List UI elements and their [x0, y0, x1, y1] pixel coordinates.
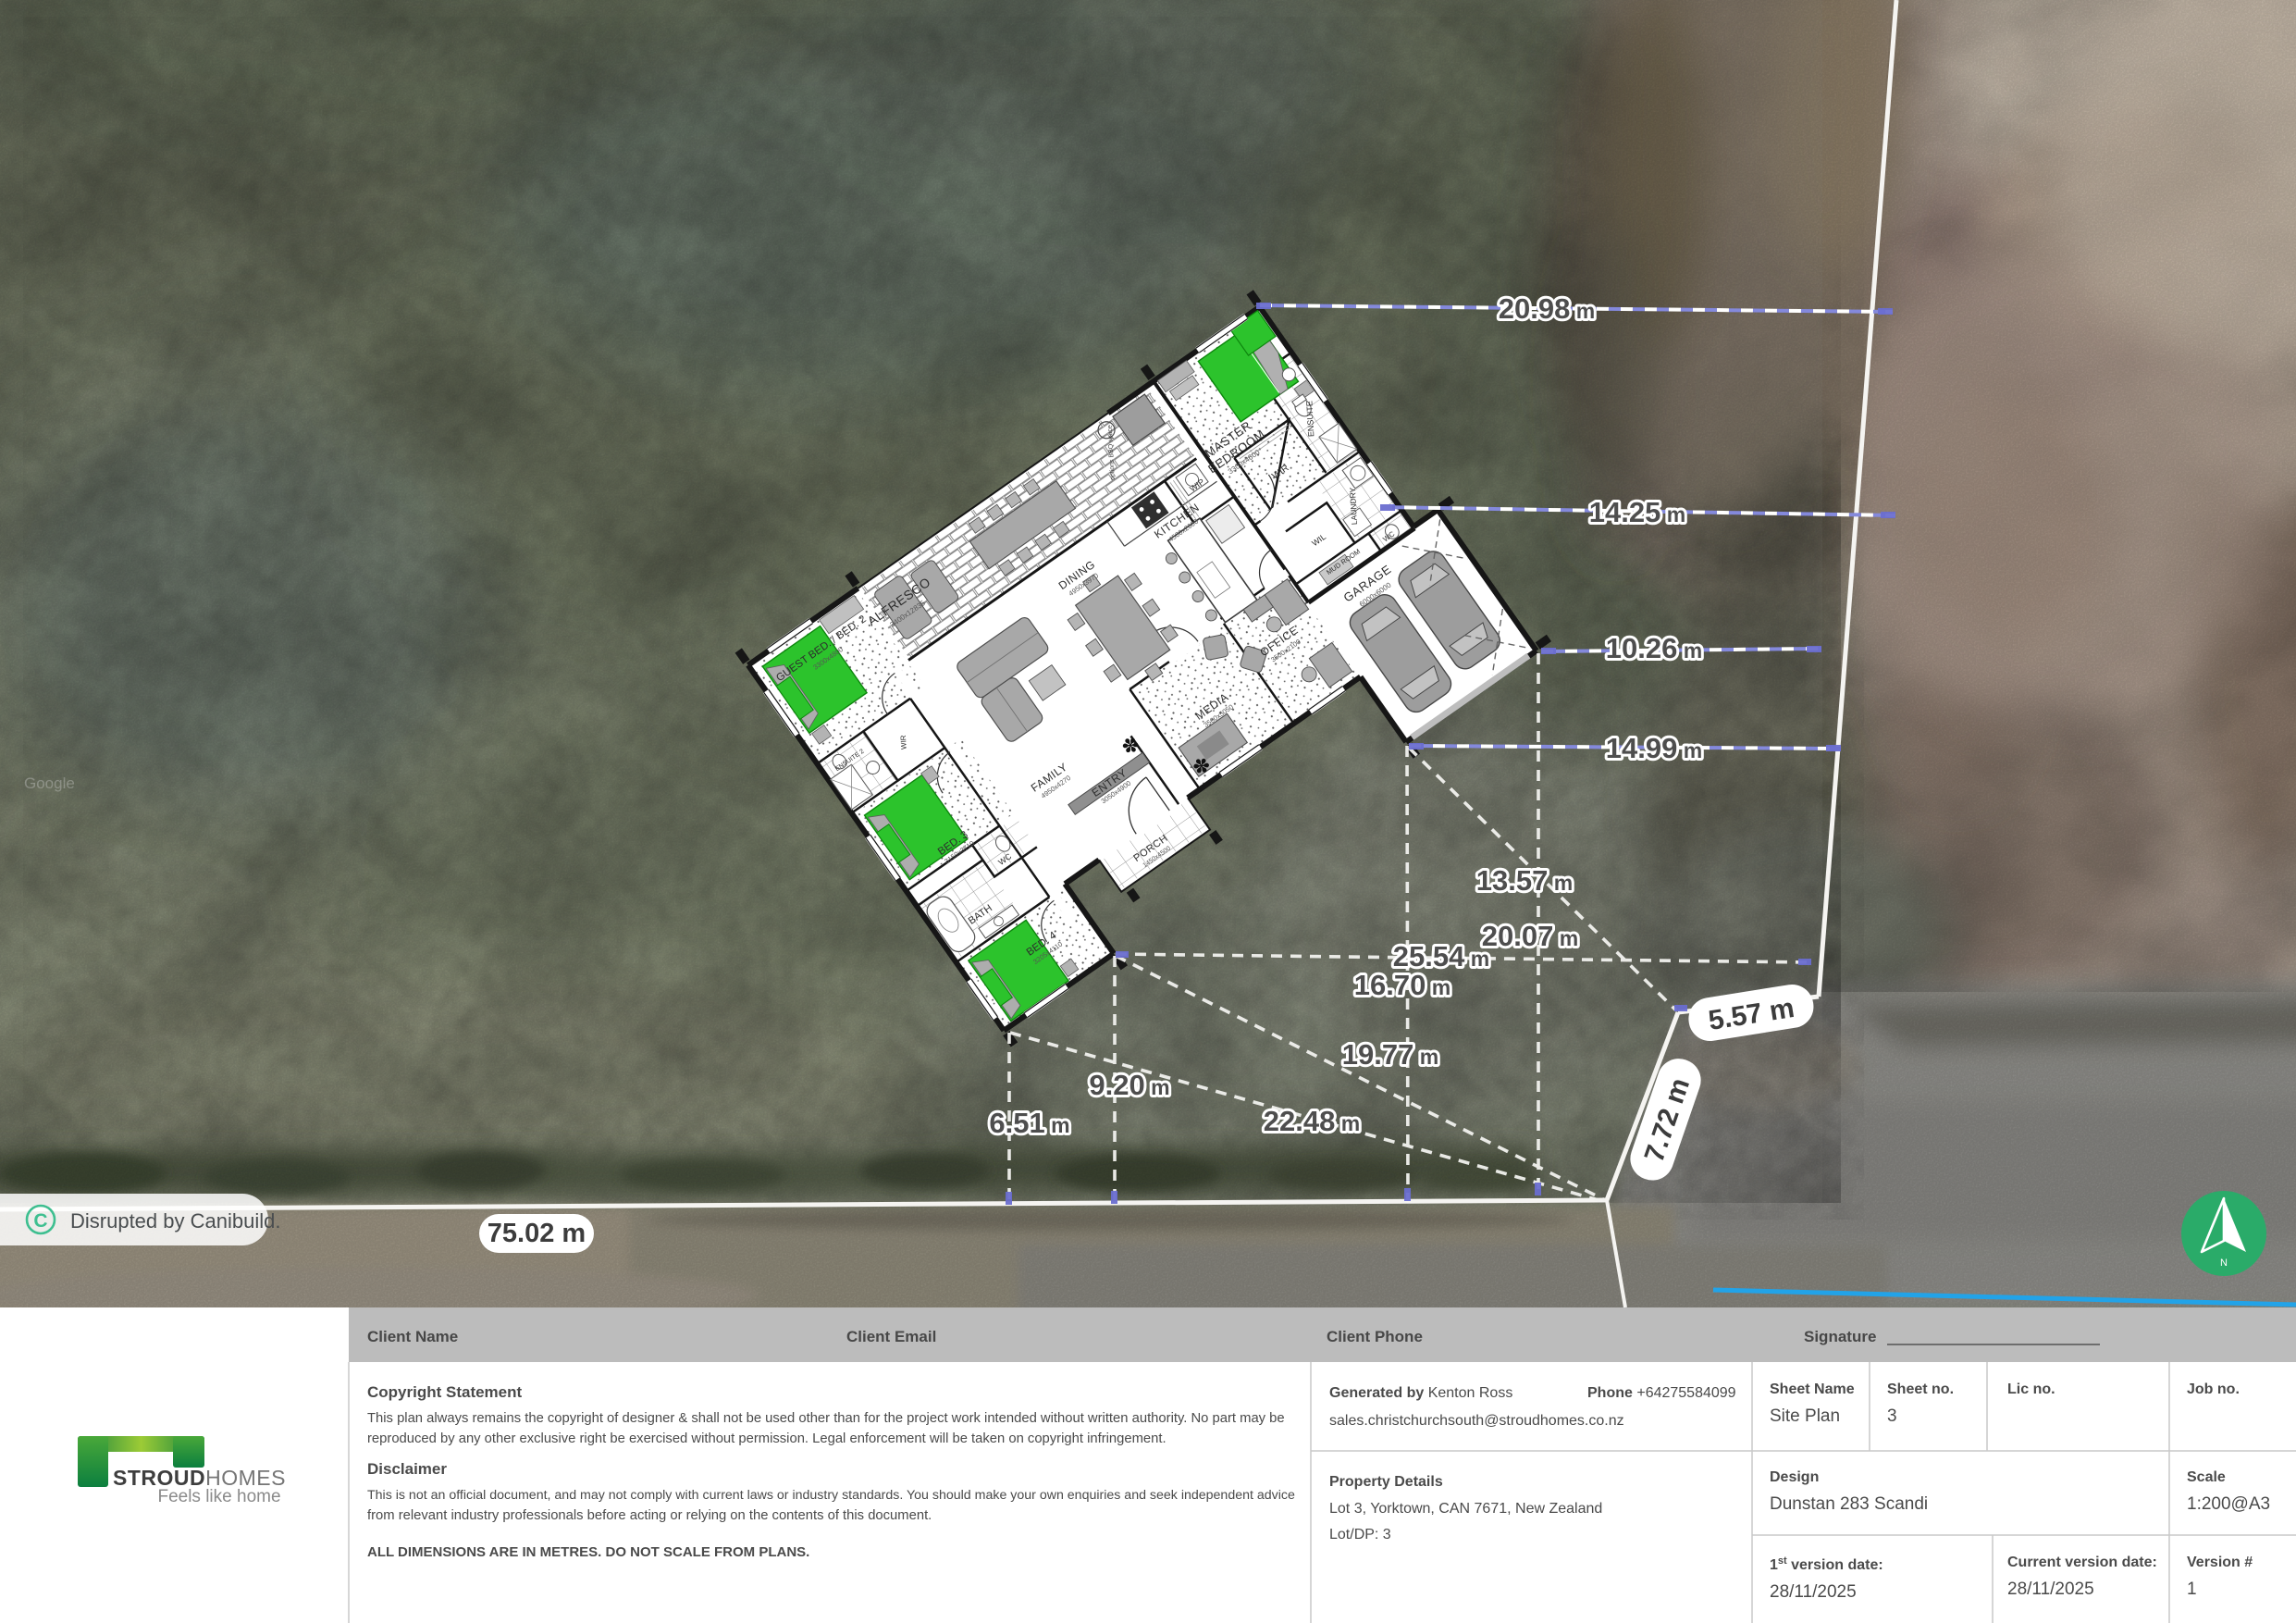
- svg-text:Disrupted by Canibuild.: Disrupted by Canibuild.: [70, 1209, 280, 1233]
- svg-text:Copyright Statement: Copyright Statement: [367, 1383, 523, 1401]
- svg-text:Client Name: Client Name: [367, 1328, 458, 1345]
- svg-text:N: N: [2220, 1258, 2228, 1269]
- svg-text:LAUNDRY: LAUNDRY: [1348, 487, 1359, 525]
- svg-text:from relevant industry profess: from relevant industry professionals bef…: [367, 1508, 932, 1523]
- svg-text:75.02 m: 75.02 m: [488, 1219, 586, 1248]
- svg-text:Lic no.: Lic no.: [2007, 1381, 2055, 1397]
- svg-text:ALL DIMENSIONS ARE IN METRES.: ALL DIMENSIONS ARE IN METRES. DO NOT SCA…: [367, 1544, 809, 1560]
- svg-text:3: 3: [1887, 1406, 1897, 1426]
- svg-text:28/11/2025: 28/11/2025: [2007, 1580, 2094, 1599]
- svg-text:Lot/DP: 3: Lot/DP: 3: [1329, 1527, 1391, 1542]
- svg-text:This plan always remains the c: This plan always remains the copyright o…: [367, 1411, 1285, 1426]
- svg-text:1st version date:: 1st version date:: [1770, 1555, 1883, 1573]
- svg-text:Version #: Version #: [2187, 1555, 2253, 1570]
- svg-text:sales.christchurchsouth@stroud: sales.christchurchsouth@stroudhomes.co.n…: [1329, 1413, 1624, 1429]
- svg-text:Generated by Kenton Ross: Generated by Kenton Ross: [1329, 1385, 1512, 1401]
- svg-text:Site Plan: Site Plan: [1770, 1406, 1840, 1426]
- svg-text:C: C: [33, 1210, 47, 1232]
- svg-text:Client Email: Client Email: [846, 1328, 936, 1345]
- svg-text:28/11/2025: 28/11/2025: [1770, 1582, 1857, 1602]
- svg-text:Current version date:: Current version date:: [2007, 1555, 2157, 1570]
- svg-text:Design: Design: [1770, 1469, 1819, 1485]
- svg-text:Scale: Scale: [2187, 1469, 2226, 1485]
- svg-text:1: 1: [2187, 1580, 2197, 1599]
- svg-text:1:200@A3: 1:200@A3: [2187, 1494, 2270, 1514]
- svg-text:Sheet Name: Sheet Name: [1770, 1381, 1855, 1397]
- svg-text:ENSUITE: ENSUITE: [1304, 401, 1315, 437]
- svg-text:Signature: Signature: [1804, 1328, 1876, 1345]
- svg-text:Disclaimer: Disclaimer: [367, 1460, 447, 1478]
- svg-text:Phone +64275584099: Phone +64275584099: [1587, 1385, 1736, 1401]
- svg-text:Feels like home: Feels like home: [157, 1487, 280, 1506]
- svg-text:Client Phone: Client Phone: [1327, 1328, 1423, 1345]
- svg-text:Job no.: Job no.: [2187, 1381, 2240, 1397]
- svg-text:This is not an official docume: This is not an official document, and ma…: [367, 1488, 1295, 1503]
- svg-text:WIR: WIR: [899, 735, 908, 750]
- svg-text:Property Details: Property Details: [1329, 1474, 1443, 1490]
- svg-text:Dunstan 283 Scandi: Dunstan 283 Scandi: [1770, 1494, 1928, 1514]
- svg-text:reproduced by any other exclus: reproduced by any other exclusive right …: [367, 1431, 1167, 1446]
- svg-text:Sheet no.: Sheet no.: [1887, 1381, 1954, 1397]
- svg-text:Lot 3, Yorktown, CAN 7671, New: Lot 3, Yorktown, CAN 7671, New Zealand: [1329, 1501, 1602, 1517]
